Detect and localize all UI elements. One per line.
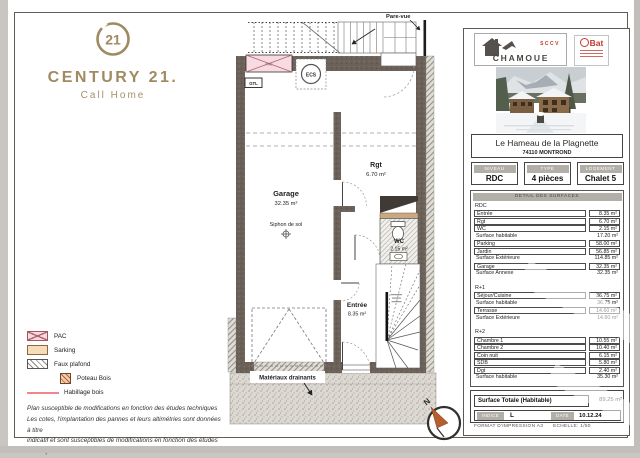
meta-niveau: NIVEAU RDC [471,162,518,185]
row-value: 56.85 m² [589,248,620,255]
interior-walls [334,112,356,362]
row-value: 36.75 m² [589,292,620,299]
table-section-header: R+1 [471,285,623,293]
floor-drain-icon [281,229,291,239]
row-value: 32.35 m² [589,270,620,277]
project-subtitle: 74110 MONTROND [472,150,622,156]
chamoue-label: CHAMOUE [481,53,561,63]
pac-swatch [27,331,48,341]
table-row: Coin nuit6.15 m² [471,352,623,360]
row-label: Dgt [474,367,586,374]
garage-entree-door [341,283,359,301]
table-row: Séjour/Cuisine36.75 m² [471,292,623,300]
ecs-label: ECS [306,73,317,79]
panel-footer: FORMAT D'IMPRESSION A3 ECHELLE: 1/50 [474,424,543,429]
faux-plafond-swatch [27,359,48,369]
row-value: 5.80 m² [589,359,620,366]
row-label: Surface Extérieure [474,255,586,262]
bat-tagline-line [580,50,603,51]
bat-tagline-line [580,53,603,54]
row-value: 32.35 m² [589,263,620,270]
lower-staircase [376,264,420,368]
legend-item-poteau-bois: Poteau Bois [27,372,223,386]
bat-label: Bat [575,38,608,48]
table-row: Chambre 110.55 m² [471,337,623,345]
paper-sheet: 21 CENTURY 21. Call Home [8,0,634,446]
row-value: 6.70 m² [589,218,620,225]
surface-table: DETAIL DES SURFACES RDCEntrée8.35 m²Rgt6… [470,190,624,387]
plan-legend: PACSarkingFaux plafondPoteau BoisHabilla… [27,330,223,458]
century21-wordmark: CENTURY 21. [28,69,198,87]
entree-area: 8.35 m² [348,312,366,318]
row-value: 14.60 m² [589,307,620,314]
page-edge-shadow [0,446,640,453]
info-panel: SCCV CHAMOUE Bat [463,28,630,436]
table-row: WC2.15 m² [471,225,623,233]
floor-plan: Pare-vue PAC ECS GTL Garage [215,10,463,442]
bat-logo: Bat [574,35,609,66]
meta-niveau-label: NIVEAU [474,165,516,173]
table-row: Jardin56.85 m² [471,248,623,256]
scale-label: ECHELLE: 1/50 [553,424,633,429]
row-label: Rgt [474,218,586,225]
row-value: 14.60 m² [589,315,620,322]
row-label: Parking [474,240,586,247]
century21-tagline: Call Home [28,90,198,101]
total-value: 89.25 m² [592,395,622,407]
garage-area: 32.35 m² [275,201,298,207]
meta-type: TYPE 4 pièces [524,162,571,185]
table-row: Terrasse14.60 m² [471,307,623,315]
sarking-band [380,213,418,219]
table-row: SDB5.80 m² [471,359,623,367]
chalet-photo [496,67,586,133]
row-value: 10.55 m² [589,337,620,344]
slope-wedge [380,196,418,213]
poteau-bois-swatch [60,373,71,384]
meta-type-value: 4 pièces [525,174,570,183]
habillage-bois-swatch [27,392,59,394]
row-value: 2.15 m² [589,225,620,232]
room-entree: Entrée 8.35 m² [343,302,371,370]
legend-note: Plan susceptible de modifications en fon… [27,404,223,415]
row-label: SDB [474,359,586,366]
row-value: 114.85 m² [589,255,620,262]
legend-item-label: Sarking [54,347,75,354]
table-section-header: R+2 [471,329,623,337]
row-label: Coin nuit [474,352,586,359]
row-value: 58.00 m² [589,240,620,247]
century21-logo: 21 CENTURY 21. Call Home [28,18,198,101]
print-format: FORMAT D'IMPRESSION A3 [474,424,543,429]
legend-item-label: PAC [54,333,66,340]
row-label: Surface habitable [474,300,586,307]
architectural-plan-sheet: { "brand": {"seal_number": "21", "wordma… [0,0,640,453]
rgt-label: Rgt [370,162,382,169]
row-value: 10.40 m² [589,344,620,351]
legend-item-pac: PAC [27,330,223,344]
table-row: Surface Extérieure14.60 m² [471,315,623,323]
table-row: Surface Extérieure114.85 m² [471,255,623,263]
legend-item-habillage-bois: Habillage bois [27,386,223,400]
wc-label: WC [394,239,405,245]
row-label: Surface habitable [474,233,586,240]
table-row: Surface habitable35.30 m² [471,374,623,382]
sccv-label: SCCV [540,41,560,47]
meta-logement-label: LOGEMENT [580,165,622,173]
garage-door [252,308,326,366]
sarking-swatch [27,345,48,355]
total-box: Surface Totale (Habitable) 89.25 m² INDI… [470,390,624,423]
table-row: Surface habitable36.75 m² [471,300,623,308]
meta-niveau-value: RDC [472,174,517,183]
legend-item-label: Habillage bois [64,389,104,396]
table-row: Chambre 210.40 m² [471,344,623,352]
row-label: Surface Extérieure [474,315,586,322]
room-wc: WC 2.15 m² [355,196,418,264]
row-value: 35.30 m² [589,374,620,381]
table-row: Dgt2.40 m² [471,367,623,375]
legend-note: Les cotes, l'implantation des pannes et … [27,415,223,437]
table-row: Rgt6.70 m² [471,218,623,226]
room-rgt: Rgt 6.70 m² [343,162,386,206]
row-label: Garage [474,263,586,270]
meta-logement-value: Chalet 5 [578,174,623,183]
project-title: Le Hameau de la Plagnette [472,138,622,148]
table-row: Garage32.35 m² [471,263,623,271]
room-garage: Garage 32.35 m² Siphon de sol [252,189,326,366]
row-label: Chambre 2 [474,344,586,351]
row-label: WC [474,225,586,232]
sink-icon [390,253,407,261]
materiaux-label: Matériaux drainants [259,376,316,382]
table-section-header: RDC [471,203,623,211]
pac-unit: PAC [246,55,292,72]
meta-type-label: TYPE [527,165,569,173]
row-value: 6.15 m² [589,352,620,359]
gtl-label: GTL [249,81,258,86]
row-label: Jardin [474,248,586,255]
legend-item-faux-plafond: Faux plafond [27,358,223,372]
row-label: Entrée [474,210,586,217]
chamoue-logo: SCCV CHAMOUE [474,33,567,66]
legend-item-label: Poteau Bois [77,375,111,382]
ecs-tank: ECS [296,59,326,89]
bat-tagline-line [580,56,603,57]
row-label: Surface Annexe [474,270,586,277]
table-row: Parking58.00 m² [471,240,623,248]
century21-seal-icon: 21 [90,18,136,60]
row-value: 17.20 m² [589,233,620,240]
row-value: 8.35 m² [589,210,620,217]
garage-label: Garage [273,189,299,198]
date-value: 10.12.24 [579,413,602,419]
table-row: Entrée8.35 m² [471,210,623,218]
row-label: Chambre 1 [474,337,586,344]
row-value: 2.40 m² [589,367,620,374]
wc-area: 2.15 m² [390,247,408,253]
pac-label: PAC [265,63,273,67]
legend-item-sarking: Sarking [27,344,223,358]
gtl-box: GTL [245,78,262,88]
project-title-box: Le Hameau de la Plagnette 74110 MONTROND [471,134,623,158]
page-edge-shadow [634,0,640,453]
indice-chip: INDICE [477,412,504,420]
total-label: Surface Totale (Habitable) [474,395,589,407]
table-row: Surface Annexe32.35 m² [471,270,623,278]
legend-item-label: Faux plafond [54,361,90,368]
indice-value: L [510,412,514,419]
row-label: Séjour/Cuisine [474,292,586,299]
rgt-area: 6.70 m² [366,172,386,178]
svg-text:21: 21 [105,32,121,48]
row-label: Terrasse [474,307,586,314]
faux-plafond-lines [246,133,416,146]
pare-vue-label: Pare-vue [386,14,411,20]
detail-header: DETAIL DES SURFACES [473,193,622,202]
legend-items: PACSarkingFaux plafondPoteau BoisHabilla… [27,330,223,400]
indice-date-row: INDICE L DATE 10.12.24 [474,410,621,421]
surface-table-rows: RDCEntrée8.35 m²Rgt6.70 m²WC2.15 m²Surfa… [471,203,623,389]
date-chip: DATE [551,412,574,420]
siphon-label: Siphon de sol [270,222,303,228]
entree-label: Entrée [347,302,368,309]
row-value: 36.75 m² [589,300,620,307]
meta-logement: LOGEMENT Chalet 5 [577,162,624,185]
table-row: Surface habitable17.20 m² [471,233,623,241]
row-label: Surface habitable [474,374,586,381]
